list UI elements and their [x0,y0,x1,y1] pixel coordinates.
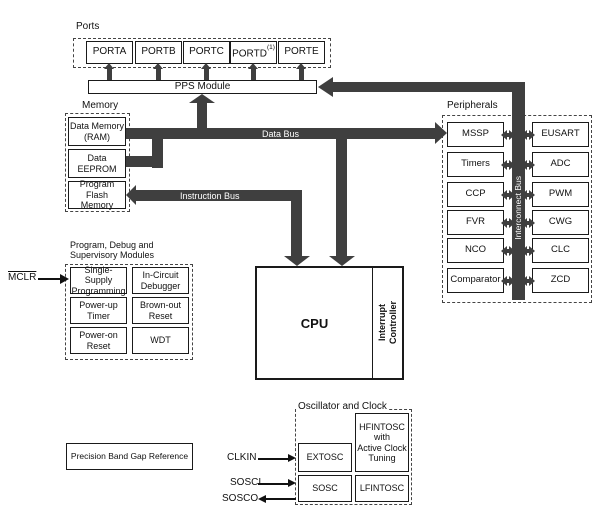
power-on-reset-box: Power-onReset [70,327,127,354]
fvr-box: FVR [447,210,504,235]
pps-portd-arrowhead-icon [248,63,258,69]
cwg-box: CWG [532,210,589,235]
eeprom-line1: Data [87,153,106,164]
eeprom-line2: EEPROM [77,164,116,175]
lfintosc-box: LFINTOSC [355,475,409,502]
power-up-timer-box: Power-upTimer [70,297,127,324]
flash-line1: Program [80,179,115,190]
databus-cpu-arrowhead-icon [329,256,355,266]
mclr-arrowhead-icon [60,274,69,284]
pps-left-arrowhead-icon [318,77,333,97]
pps-portb-arrow [156,69,161,80]
eusart-box: EUSART [532,122,589,147]
sosco-arrow-line [266,498,296,500]
pps-portc-arrowhead-icon [201,63,211,69]
clkin-arrow-line [258,458,288,460]
single-supply-programming-box: Single-SupplyProgramming [70,267,127,294]
debug-group-label: Program, Debug and Supervisory Modules [68,241,156,260]
pps-porta-arrow [107,69,112,80]
instructionbus-cpu-arrowhead-icon [284,256,310,266]
clc-box: CLC [532,238,589,263]
band-gap-reference-box: Precision Band Gap Reference [66,443,193,470]
sosco-pin-label: SOSCO [222,494,258,504]
ram-line1: Data Memory [70,121,124,132]
extosc-box: EXTOSC [298,443,352,472]
portc-label: PORTC [189,47,224,58]
ports-group-label: Ports [74,22,101,32]
timers-box: Timers [447,152,504,177]
data-eeprom-box: Data EEPROM [68,149,126,178]
program-flash-box: Program Flash Memory [68,181,126,209]
portc-box: PORTC [183,41,230,64]
pps-module-box: PPS Module [88,80,317,94]
sosco-arrowhead-icon [258,495,266,503]
instructionbus-cpu-drop [291,201,302,256]
zcd-bus-connector-icon [521,276,535,286]
mssp-box: MSSP [447,122,504,147]
interconnect-bus-label-wrap: Interconnect Bus [511,115,525,300]
databus-right-arrowhead-icon [435,122,447,144]
databus-eeprom-branch-horizontal [126,156,163,167]
pps-up-arrowhead-icon [189,94,215,103]
data-bus-label: Data Bus [262,129,299,139]
ccp-box: CCP [447,182,504,207]
ram-line2: (RAM) [84,132,110,143]
oscillator-group-label: Oscillator and Clock [296,402,389,412]
porte-label: PORTE [284,47,318,58]
pps-porte-arrowhead-icon [296,63,306,69]
instructionbus-left-arrowhead-icon [126,185,136,205]
nco-bus-connector-icon [501,246,515,256]
comparator-bus-connector-icon [501,276,515,286]
flash-line2: Flash Memory [69,190,125,211]
mclr-arrow-line [38,278,60,280]
memory-group-label: Memory [80,101,120,111]
peripherals-group-label: Peripherals [445,101,500,111]
in-circuit-debugger-box: In-CircuitDebugger [132,267,189,294]
clc-bus-connector-icon [521,246,535,256]
porta-label: PORTA [93,47,127,58]
sosc-box: SOSC [298,475,352,502]
clkin-pin-label: CLKIN [227,453,256,463]
cpu-label: CPU [257,268,372,378]
brown-out-reset-box: Brown-outReset [132,297,189,324]
pps-porte-arrow [299,69,304,80]
porte-box: PORTE [278,41,325,64]
instruction-bus-label: Instruction Bus [180,191,240,201]
portb-label: PORTB [141,47,175,58]
zcd-box: ZCD [532,268,589,293]
fvr-bus-connector-icon [501,218,515,228]
nco-box: NCO [447,238,504,263]
hfintosc-box: HFINTOSC with Active Clock Tuning [355,413,409,472]
databus-cpu-drop [336,139,347,256]
pps-portc-arrow [204,69,209,80]
portd-box: PORTD(1) [230,41,277,64]
portb-box: PORTB [135,41,182,64]
eusart-bus-connector-icon [521,130,535,140]
mcu-block-diagram: Ports PORTA PORTB PORTC PORTD(1) PORTE P… [0,0,611,526]
interconnect-to-pps-bus [333,82,525,92]
pps-portb-arrowhead-icon [153,63,163,69]
mclr-pin-label: MCLR [8,273,36,283]
pwm-box: PWM [532,182,589,207]
pwm-bus-connector-icon [521,190,535,200]
cpu-box: CPU Interrupt Controller [255,266,404,380]
interconnect-bus-label: Interconnect Bus [513,176,523,240]
adc-bus-connector-icon [521,160,535,170]
mssp-bus-connector-icon [501,130,515,140]
pps-portd-arrow [251,69,256,80]
interrupt-controller-label: Interrupt Controller [377,301,399,344]
portd-label: PORTD(1) [232,46,275,60]
cwg-bus-connector-icon [521,218,535,228]
adc-box: ADC [532,152,589,177]
porta-box: PORTA [86,41,133,64]
ccp-bus-connector-icon [501,190,515,200]
pps-porta-arrowhead-icon [104,63,114,69]
interrupt-controller-strip: Interrupt Controller [372,268,402,378]
sosci-arrow-line [258,483,288,485]
sosci-arrowhead-icon [288,479,296,487]
timers-bus-connector-icon [501,160,515,170]
sosci-pin-label: SOSCI [230,478,261,488]
comparator-box: Comparator [447,268,504,293]
pps-module-label: PPS Module [175,82,231,93]
wdt-box: WDT [132,327,189,354]
portd-footnote: (1) [267,44,275,51]
clkin-arrowhead-icon [288,454,296,462]
data-memory-ram-box: Data Memory (RAM) [68,117,126,146]
